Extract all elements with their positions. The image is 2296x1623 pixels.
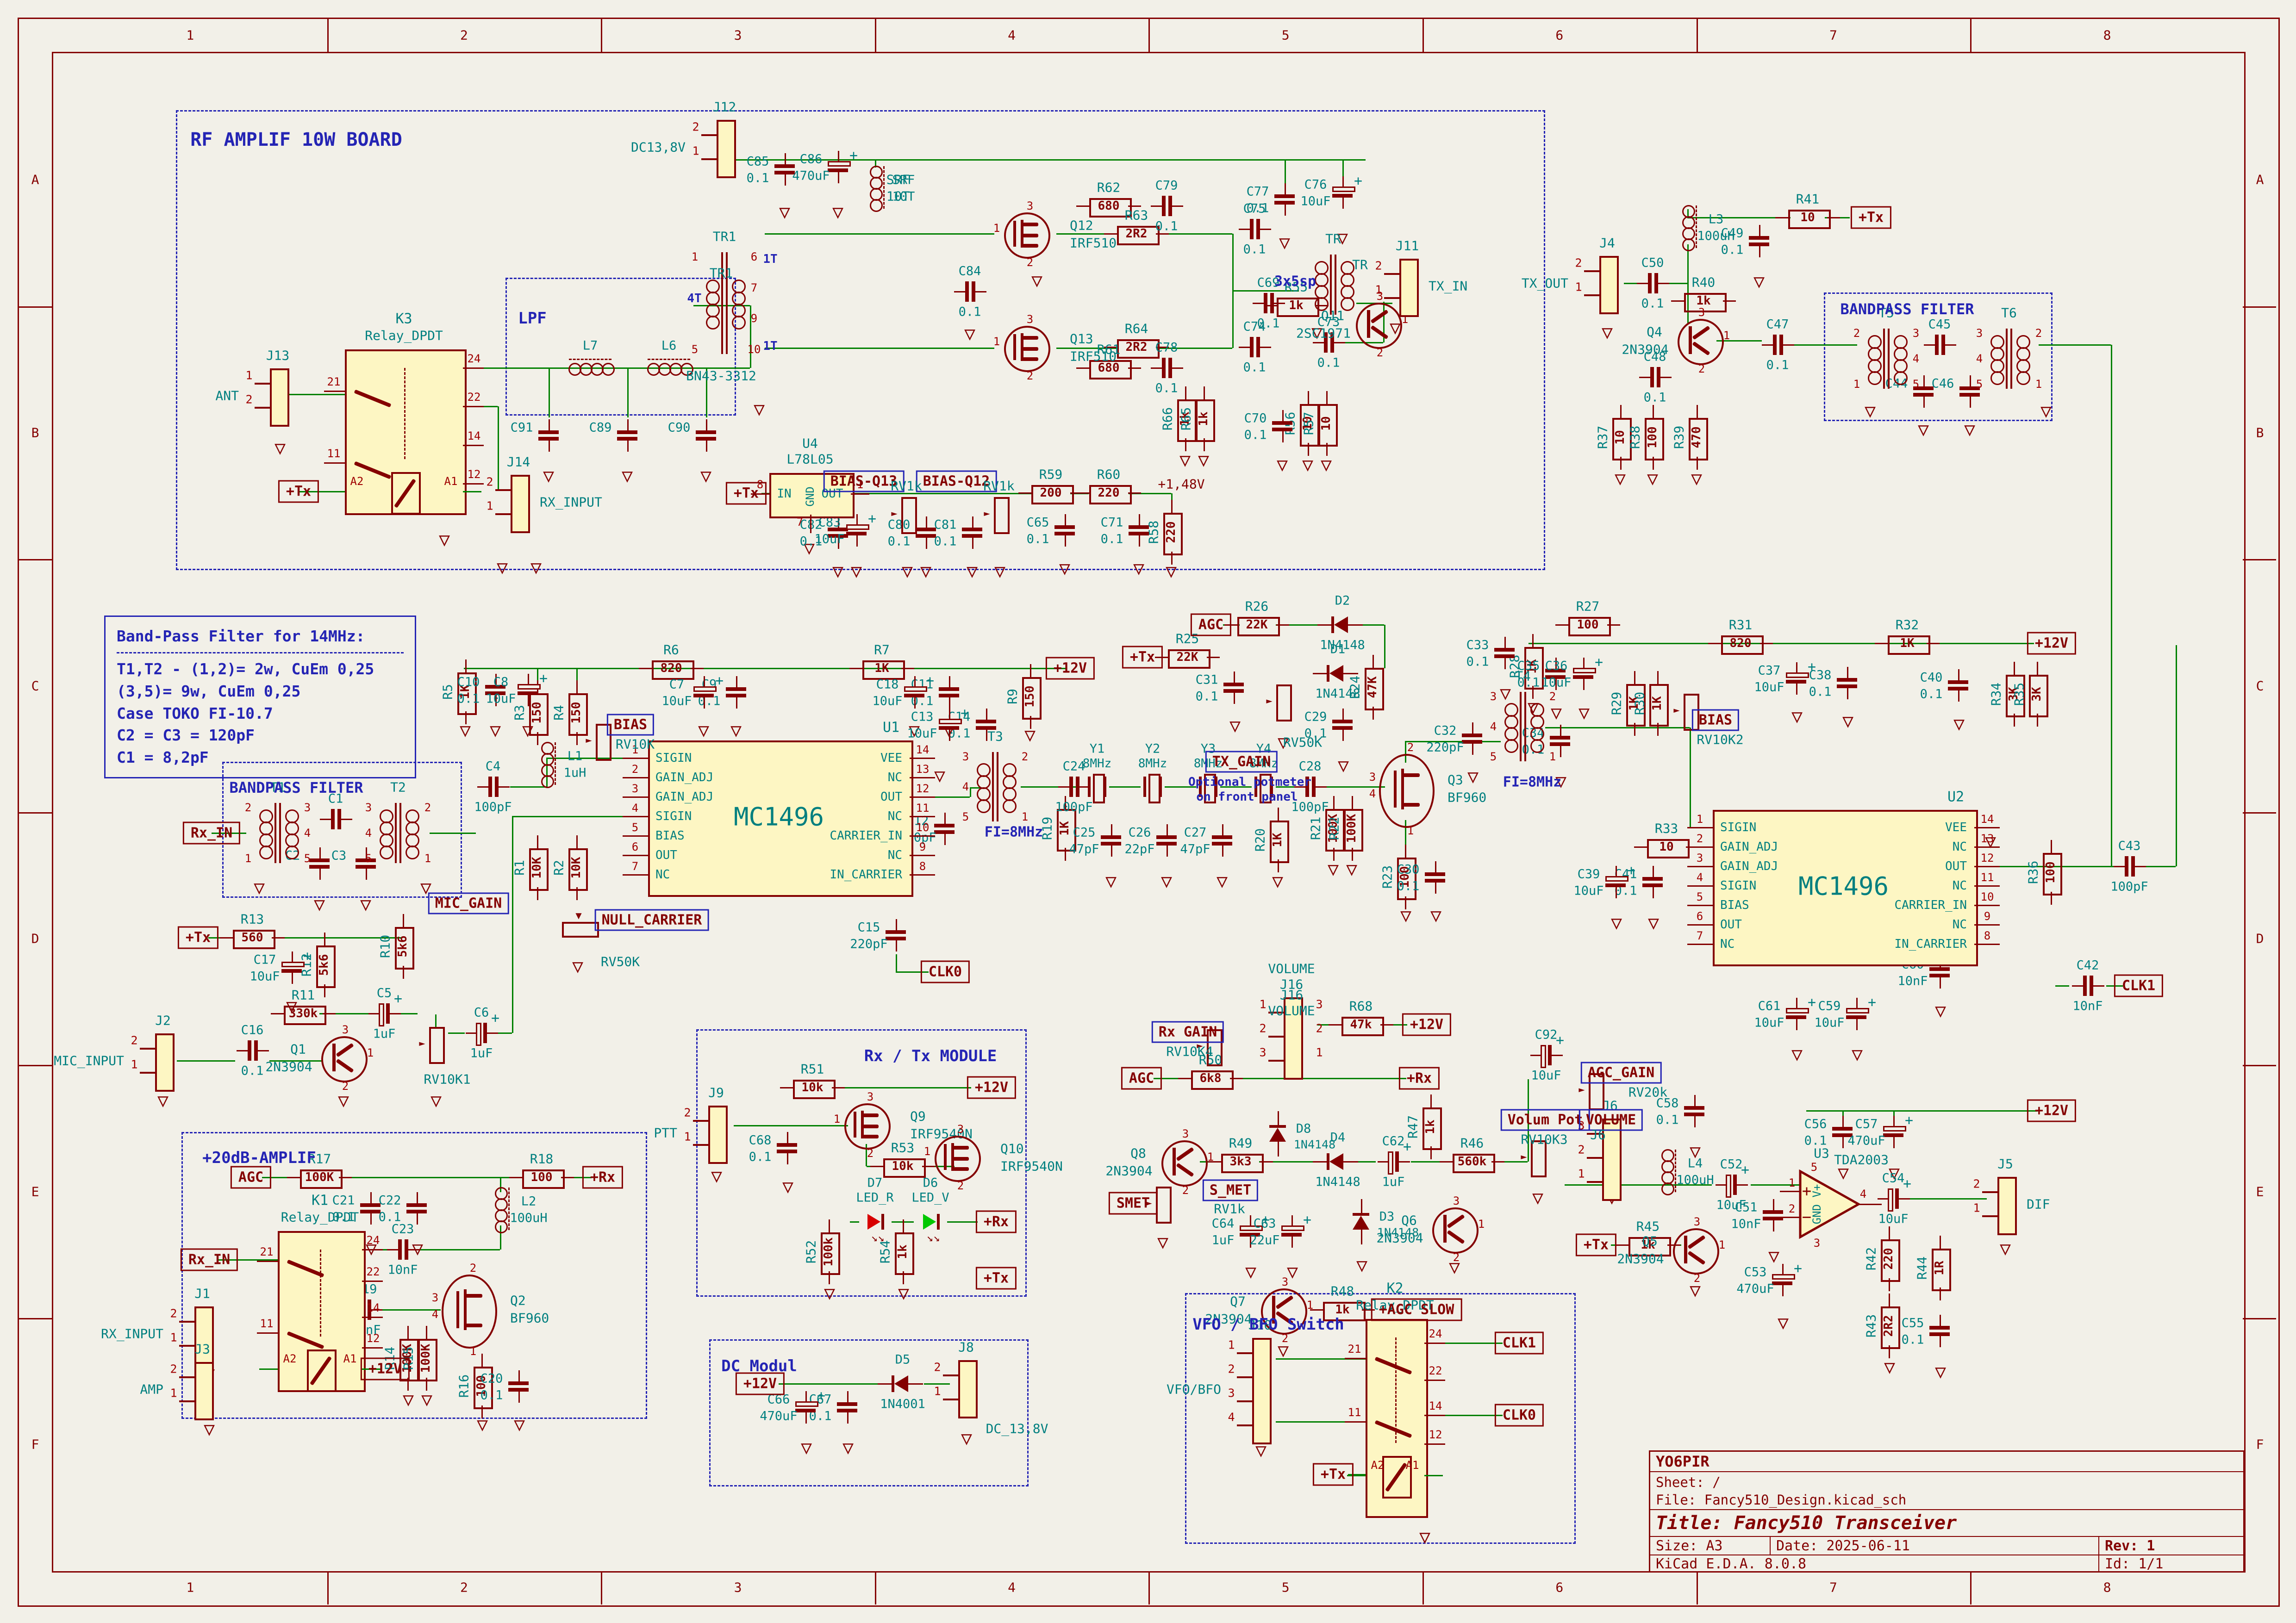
text: 2 <box>1698 362 1705 375</box>
pin-number: 10 <box>748 343 761 356</box>
text: 10uF <box>1754 1016 1784 1030</box>
text: 100K <box>305 1170 334 1184</box>
wire <box>370 1192 372 1203</box>
text: 470uF <box>1847 1134 1885 1148</box>
component-C80 <box>916 534 936 538</box>
wire <box>1762 344 1773 346</box>
pin-number: 3 <box>632 782 638 795</box>
wire <box>1326 391 1328 404</box>
component-C34 <box>1550 736 1570 740</box>
text: 2 <box>1027 369 1033 382</box>
wire <box>1172 367 1183 369</box>
text: R51 <box>801 1062 824 1077</box>
connector-ref: J12 <box>713 99 736 115</box>
wire <box>287 394 345 395</box>
wire <box>220 937 233 939</box>
connector-ref: J3 <box>194 1342 210 1357</box>
text: 2SC1971 <box>1296 326 1351 341</box>
component-Q5 <box>1684 1236 1687 1263</box>
text: R27 <box>1576 599 1600 614</box>
text: R26 <box>1245 599 1269 614</box>
border-column-label: 4 <box>1008 1580 1016 1595</box>
component-C83 <box>846 524 869 530</box>
border-column-label: 5 <box>1282 28 1290 43</box>
wire <box>1378 1161 1389 1163</box>
border-tick <box>875 1571 876 1604</box>
text: 0.1 <box>1257 317 1280 331</box>
pin-number: 2 <box>1316 1022 1323 1035</box>
title-block-tool: KiCad E.D.A. 8.0.8 <box>1650 1555 2103 1572</box>
note-divider <box>117 652 404 653</box>
text: Y2 <box>1145 742 1160 756</box>
text: Q13 <box>1070 331 1093 347</box>
component-Q13 <box>1023 357 1038 361</box>
text: 1 <box>834 1113 840 1126</box>
gnd-symbol: ▽ <box>157 1090 168 1112</box>
wire <box>1660 377 1672 378</box>
text: 10uF <box>486 692 516 706</box>
pin-number: 22 <box>468 391 481 404</box>
relay-ref: K3 <box>395 311 412 327</box>
pin-number: 24 <box>367 1234 380 1247</box>
gnd-symbol: ▽ <box>1133 558 1144 579</box>
wire <box>1291 1237 1293 1248</box>
wire <box>693 1144 710 1146</box>
wire <box>1384 273 1401 275</box>
gnd-symbol: ▽ <box>622 466 633 487</box>
pin-number: A1 <box>444 475 458 488</box>
text: R30 <box>1632 692 1647 715</box>
component-C80 <box>916 528 936 531</box>
wire <box>1782 1285 1784 1296</box>
pin <box>623 874 648 876</box>
component-Q10 <box>953 1146 969 1150</box>
text: 2 <box>1694 1272 1700 1285</box>
text: + <box>817 1388 825 1404</box>
text: R16 <box>456 1374 472 1398</box>
border-tick <box>1697 1571 1698 1604</box>
text: ► <box>1673 705 1679 716</box>
pin-number: 1 <box>1375 283 1382 297</box>
text: 3 <box>1369 771 1376 784</box>
pin-number: 3 <box>365 801 372 814</box>
wire <box>1435 883 1436 894</box>
wire <box>1634 671 1635 684</box>
component-C92 <box>1541 1045 1546 1068</box>
gnd-symbol: ▽ <box>1277 454 1288 476</box>
wire <box>518 1392 520 1403</box>
note-line: T1,T2 - (1,2)= 2w, CuEm 0,25 <box>117 658 404 680</box>
pin-name: CARRIER_IN <box>1894 898 1967 912</box>
text: C3 <box>331 849 347 863</box>
text: 1 <box>993 222 1000 235</box>
label: BN43-3312 <box>686 368 756 384</box>
component-C8 <box>518 691 538 695</box>
text: L6 <box>661 339 677 353</box>
text: 10uF <box>1814 1016 1844 1030</box>
flag--12V: +12V <box>1046 657 1095 680</box>
pin-number: 8 <box>919 860 926 873</box>
label: +20dB-AMPLIF <box>202 1149 316 1167</box>
wire <box>1653 457 1654 470</box>
border-column-label: 5 <box>1282 1580 1290 1595</box>
wire <box>463 445 484 446</box>
component-C40 <box>1948 687 1968 690</box>
pin <box>910 835 935 837</box>
text: 100K <box>1345 814 1359 843</box>
wire <box>1424 1443 1445 1445</box>
component-C34 <box>1550 742 1570 746</box>
text: 0.1 <box>1155 381 1178 396</box>
wire <box>847 1391 849 1402</box>
pin-number: 22 <box>367 1265 380 1278</box>
gnd-symbol: ▽ <box>439 529 450 551</box>
wire <box>387 1249 398 1250</box>
border-row-label: D <box>31 931 39 946</box>
flag--Tx: +Tx <box>1851 206 1891 229</box>
wire <box>1847 688 1848 699</box>
wire <box>1285 160 1286 183</box>
component-C23 <box>405 1239 408 1260</box>
wire <box>1430 1094 1432 1107</box>
ic-value: MC1496 <box>1798 872 1889 901</box>
text: Q6 <box>1401 1213 1417 1228</box>
wire <box>954 291 965 292</box>
text: C8 <box>493 675 509 690</box>
pin-number: 5 <box>1913 378 1919 391</box>
component-C23 <box>398 1239 402 1260</box>
pin-number: A2 <box>283 1352 297 1365</box>
component-C53 <box>1772 1274 1795 1280</box>
pin-number: 1 <box>1578 1167 1585 1181</box>
text: 560k <box>1458 1155 1487 1169</box>
component-C91 <box>538 430 559 434</box>
text: 10uF <box>1300 194 1330 209</box>
transformer-T3 <box>1003 799 1017 813</box>
pin-number: 8 <box>1984 929 1990 942</box>
text: R62 <box>1097 180 1121 195</box>
wire <box>1759 225 1760 236</box>
wire <box>1222 846 1223 857</box>
text: C37 <box>1758 664 1781 678</box>
wire <box>1491 1161 1504 1163</box>
text: R10 <box>378 935 393 958</box>
text: 100uH <box>1676 1173 1714 1188</box>
wire <box>362 1347 383 1349</box>
connector-ref: J13 <box>266 348 290 363</box>
wire <box>1924 344 1935 346</box>
wire <box>272 937 285 939</box>
border-tick <box>601 19 602 52</box>
gnd-symbol: ▽ <box>2000 1238 2011 1260</box>
pin-number: 10 <box>916 821 930 834</box>
pin-number: 2 <box>131 1034 137 1047</box>
text: C21 <box>332 1194 355 1208</box>
component-C48 <box>1657 367 1660 387</box>
border-tick <box>19 1318 52 1319</box>
pin <box>1974 885 2000 887</box>
text: 1 <box>924 1145 930 1158</box>
text: + <box>303 948 312 964</box>
pin-number: 2 <box>1853 327 1860 340</box>
wire <box>1352 796 1353 809</box>
text: 3 <box>1694 1215 1700 1228</box>
text: 0.1 <box>749 1150 772 1164</box>
component-Q13 <box>1023 336 1038 340</box>
text: R1 <box>512 860 527 876</box>
text: R23 <box>1380 865 1395 889</box>
text: R44 <box>1915 1256 1930 1280</box>
gnd-symbol: ▽ <box>1602 322 1613 343</box>
pin-number: 5 <box>692 343 698 356</box>
wire <box>1624 283 1637 284</box>
component-D5 <box>894 1375 908 1392</box>
pin-number: A2 <box>350 475 364 488</box>
pin-number: 2 <box>1375 259 1382 273</box>
wire <box>832 1087 845 1088</box>
wire <box>1587 1181 1603 1183</box>
wire <box>370 1213 372 1225</box>
text: 100pF <box>1055 800 1092 815</box>
wire <box>366 869 367 880</box>
wire <box>324 984 325 997</box>
pin-number: 21 <box>1348 1343 1361 1356</box>
gnd-symbol: ▽ <box>934 765 945 787</box>
text: + <box>539 671 548 687</box>
text: R48 <box>1331 1284 1354 1299</box>
component-Q12 <box>1023 234 1038 237</box>
flag--Tx: +Tx <box>1122 646 1163 669</box>
transformer-T1 <box>285 846 299 859</box>
pin-number: 11 <box>327 447 341 460</box>
text: IRF9540N <box>1000 1159 1063 1174</box>
text: 0.1 <box>1196 690 1218 704</box>
hlabel-BIAS: BIAS <box>1692 709 1739 731</box>
component-C5 <box>379 1003 384 1026</box>
text: 0.1 <box>959 305 981 319</box>
pin-name: SIGIN <box>1720 821 1756 834</box>
wire <box>463 367 484 369</box>
transformer-TR <box>1330 255 1332 315</box>
component-C37 <box>1786 672 1809 678</box>
wire <box>1694 1095 1696 1106</box>
wire <box>1859 1204 1882 1205</box>
text: R42 <box>1864 1247 1879 1271</box>
component-C1 <box>331 809 335 829</box>
component-C38 <box>1837 678 1857 682</box>
border-row-label: C <box>2256 678 2264 693</box>
pin-number: 1 <box>692 250 698 263</box>
text: R53 <box>891 1140 915 1156</box>
text: + <box>1403 1139 1411 1155</box>
text: 2N3904 <box>265 1059 312 1075</box>
pin-number: 11 <box>1348 1406 1361 1419</box>
text: 470uF <box>792 169 830 183</box>
connector-ref: J2 <box>155 1013 171 1028</box>
text: C40 <box>1920 671 1943 685</box>
flag-Rx-IN: Rx_IN <box>183 822 240 845</box>
transformer-TR1 <box>706 316 720 330</box>
transformer-TR <box>1335 255 1336 315</box>
component-C37 <box>1786 680 1806 684</box>
border-row-label: A <box>2256 172 2264 187</box>
wire <box>1889 1345 1890 1358</box>
text: 2 <box>1407 741 1414 754</box>
wire <box>1342 198 1344 209</box>
wire <box>518 1370 520 1381</box>
wire <box>1018 492 1031 494</box>
gnd-symbol: ▽ <box>1935 1362 1946 1383</box>
component-Q3 <box>1379 754 1435 828</box>
wire <box>1326 443 1328 456</box>
pin <box>623 796 648 798</box>
wire <box>1342 709 1344 720</box>
text: 1 <box>1478 1218 1485 1231</box>
wire <box>736 676 737 687</box>
component-C68 <box>777 1150 797 1153</box>
text: 1 <box>1789 1176 1795 1189</box>
flag-AGC: AGC <box>1191 614 1231 636</box>
wire <box>1399 1161 1410 1163</box>
text: 10nF <box>387 1263 418 1277</box>
label: +1,48V <box>1158 477 1204 492</box>
border-row-label: C <box>31 678 39 693</box>
component-D8 <box>1269 1128 1286 1142</box>
gnd-symbol: ▽ <box>1179 450 1191 471</box>
wire <box>576 835 578 848</box>
text: R57 <box>1301 412 1316 435</box>
text: C52 <box>1720 1157 1743 1172</box>
wire <box>1313 1161 1327 1163</box>
coil-core <box>883 166 885 209</box>
wire <box>1104 233 1117 235</box>
gnd-symbol: ▽ <box>1229 715 1241 737</box>
label: BANDPASS FILTER <box>1841 300 1974 318</box>
wire <box>255 407 271 409</box>
wire <box>510 786 546 788</box>
wire <box>465 711 467 724</box>
component-C32 <box>1462 734 1482 737</box>
text: R38 <box>1628 426 1643 449</box>
text: 150 <box>569 702 583 724</box>
wire <box>1345 1421 1366 1423</box>
flag-AGC: AGC <box>1121 1067 1162 1090</box>
pin-number: 22 <box>1429 1364 1442 1377</box>
text: R21 <box>1308 817 1323 840</box>
label: RV1k <box>891 479 922 494</box>
text: 10uF <box>1531 1069 1561 1083</box>
pin-number: 14 <box>1981 813 1994 826</box>
wire <box>1653 405 1654 418</box>
component-C79 <box>1168 196 1172 216</box>
text: Q4 <box>1647 324 1662 340</box>
text: 2 <box>1027 256 1033 269</box>
component-D5 <box>892 1375 894 1392</box>
wire <box>255 383 271 385</box>
label: TR <box>1352 257 1368 273</box>
component-D6 <box>923 1214 936 1230</box>
pin-name: GAIN_ADJ <box>655 790 713 804</box>
text: 10uF <box>250 970 280 984</box>
text: 0.1 <box>1656 1113 1679 1127</box>
wire <box>2051 840 2052 853</box>
gnd-symbol: ▽ <box>1791 1044 1803 1065</box>
text: R31 <box>1729 617 1753 633</box>
ic-ref: U4 <box>802 436 818 451</box>
text: 10 <box>1659 840 1673 854</box>
flag--Tx: +Tx <box>278 480 319 503</box>
text: 10nF <box>1731 1217 1761 1231</box>
wire <box>2039 344 2111 346</box>
gnd-symbol: ▽ <box>1346 859 1357 880</box>
wire <box>1760 643 1773 644</box>
flag--Rx: +Rx <box>976 1211 1017 1233</box>
wire <box>943 1399 960 1400</box>
text: C78 <box>1155 341 1178 355</box>
text: C42 <box>2077 958 2099 973</box>
text: D3 <box>1379 1210 1395 1224</box>
component-Q9 <box>854 1112 856 1138</box>
text: 1 <box>1407 824 1414 837</box>
flag--12V: +12V <box>967 1076 1016 1099</box>
pin <box>1687 827 1713 828</box>
component-C2 <box>309 865 330 869</box>
text: 5 <box>1811 1161 1817 1174</box>
pin-number: 3 <box>1490 690 1497 703</box>
text: 0.1 <box>1902 1333 1924 1347</box>
component-D2 <box>1334 616 1348 633</box>
component-C9 <box>726 687 746 691</box>
component-D3 <box>1353 1216 1369 1230</box>
gnd-symbol: ▽ <box>1161 871 1172 892</box>
component-L1 <box>541 775 554 788</box>
pin-number: 2 <box>1697 832 1703 845</box>
wire <box>1424 1475 1443 1476</box>
text: R6 <box>663 642 679 658</box>
gnd-symbol: ▽ <box>254 877 265 899</box>
gnd-symbol: ▽ <box>898 1283 909 1304</box>
wire <box>1308 443 1309 456</box>
text: IN <box>777 487 791 501</box>
wire <box>1504 637 1506 648</box>
connector-name: AMP <box>140 1382 163 1397</box>
wire <box>1342 176 1344 187</box>
text: C47 <box>1766 317 1789 332</box>
component-C50 <box>1654 273 1658 293</box>
pin-number: 14 <box>1429 1399 1442 1412</box>
pin-name: NC <box>1953 840 1967 854</box>
pin-number: 24 <box>468 352 481 365</box>
flag-CLK1: CLK1 <box>2114 975 2163 997</box>
wire <box>2093 985 2104 987</box>
wire <box>1424 1415 1445 1416</box>
wire <box>1334 342 1345 343</box>
text: GND <box>804 486 817 506</box>
pin-number: 2 <box>486 475 493 489</box>
wire <box>1171 500 1173 513</box>
wire <box>464 668 1066 669</box>
wire <box>627 368 629 417</box>
wire <box>1504 658 1506 669</box>
wire <box>949 676 950 687</box>
text: R45 <box>1636 1219 1660 1234</box>
wire <box>257 1332 278 1334</box>
wire <box>481 1354 483 1367</box>
text: 0.1 <box>1317 356 1340 370</box>
note-line: C1 = 8,2pF <box>117 746 404 769</box>
text: C4 <box>486 759 501 774</box>
wire <box>1584 270 1601 272</box>
